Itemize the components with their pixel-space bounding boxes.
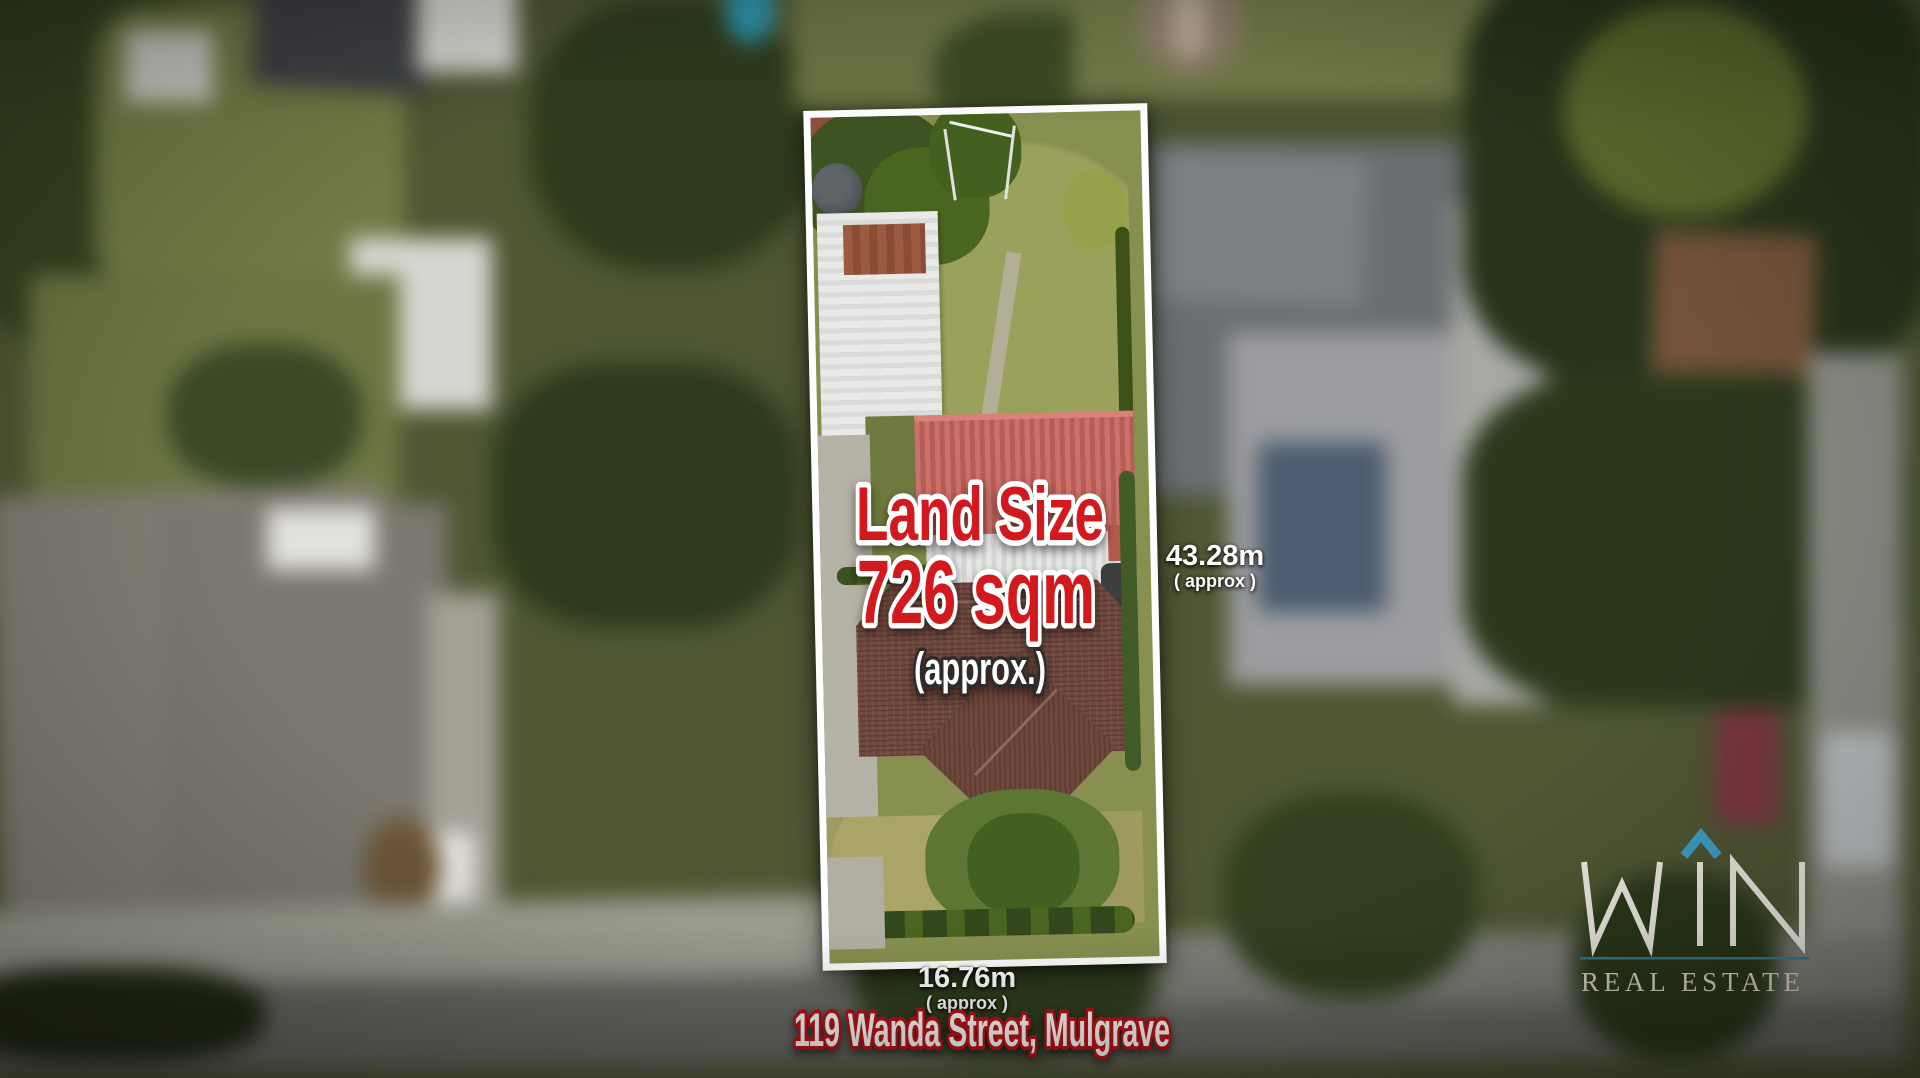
white-building-top	[417, 0, 517, 72]
land-size-value: 726 sqm	[857, 543, 1095, 643]
yellow-green-trees	[1563, 3, 1808, 218]
garage-rust-section	[843, 223, 926, 275]
land-size-qualifier: (approx.)	[914, 643, 1046, 694]
right-house-roof-light	[1152, 149, 1367, 306]
property-address: 119 Wanda Street, Mulgrave	[794, 1003, 1170, 1056]
autumn-tree	[363, 818, 441, 916]
side-dimension-value: 43.28m	[1150, 541, 1280, 571]
trees-bottom-left	[0, 967, 265, 1062]
logo-divider-line	[1580, 957, 1810, 960]
silver-parked-car	[1821, 731, 1895, 869]
aerial-property-photo: Land Size 726 sqm (approx.) 43.28m ( app…	[0, 0, 1920, 1078]
win-real-estate-logo: REAL ESTATE	[1562, 822, 1828, 1004]
letter-n	[1733, 862, 1802, 946]
roof-caret-icon	[1684, 835, 1718, 856]
center-house-white-roof	[267, 508, 375, 570]
small-shed	[125, 30, 213, 102]
dark-roof-top	[251, 0, 435, 96]
side-dimension-qualifier: ( approx )	[1150, 571, 1280, 593]
red-parked-car	[1715, 708, 1779, 826]
front-tree-core	[966, 812, 1080, 917]
trees-mid-left	[167, 343, 362, 488]
address-callout: 119 Wanda Street, Mulgrave	[772, 1000, 1192, 1064]
garden-fountain-path	[1171, 0, 1207, 57]
trees-bottom-right	[1223, 793, 1478, 998]
trees-center-top	[528, 0, 813, 272]
front-path	[827, 856, 885, 949]
win-logo-mark	[1584, 862, 1802, 946]
frontage-dimension-value: 16.76m	[887, 963, 1047, 993]
trees-left-of-parcel	[493, 363, 798, 628]
side-dimension: 43.28m ( approx )	[1150, 541, 1280, 593]
letter-w	[1584, 862, 1660, 946]
land-size-callout: Land Size 726 sqm (approx.)	[780, 460, 1180, 705]
logo-tagline: REAL ESTATE	[1581, 967, 1809, 997]
